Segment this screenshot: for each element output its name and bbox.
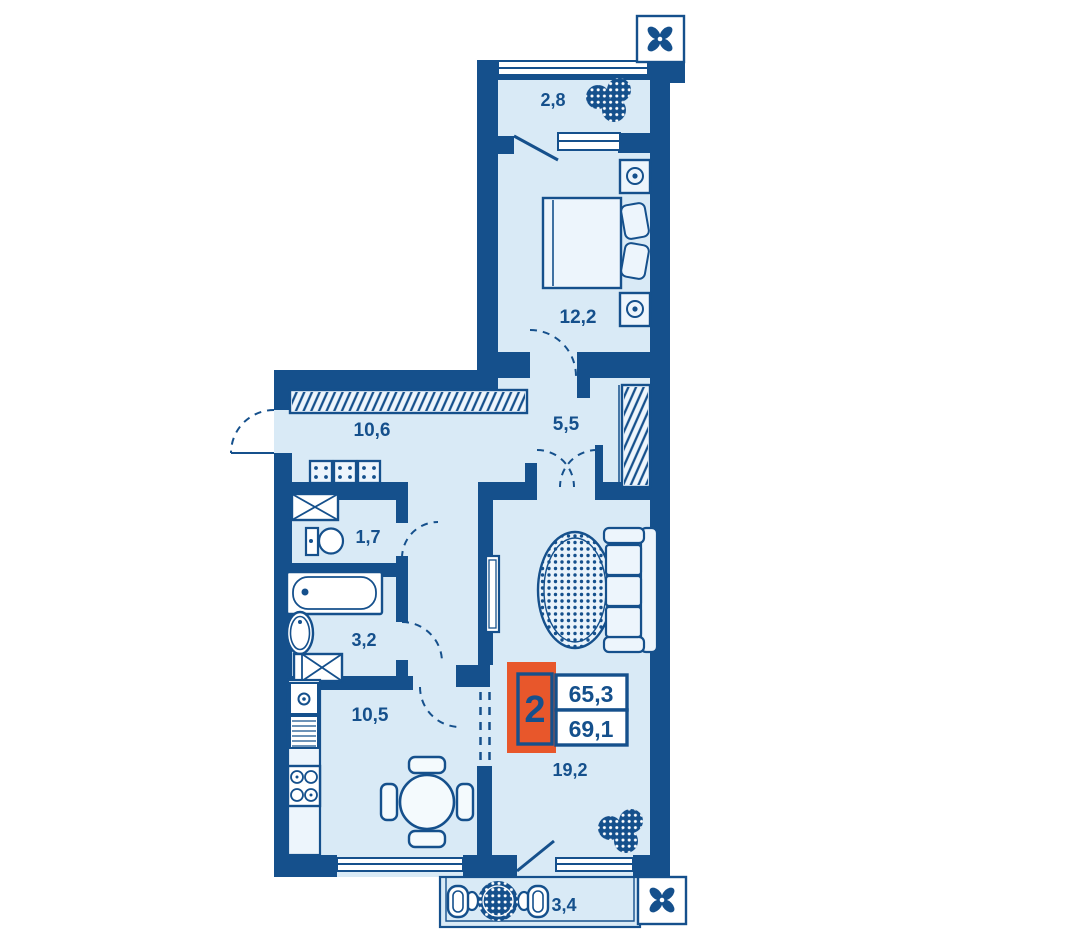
corridor-wardrobe	[619, 385, 650, 487]
kitchen-drainer	[290, 716, 318, 748]
unit-info-box: 2 65,3 69,1	[507, 662, 627, 753]
nightstand-bottom	[620, 293, 650, 326]
kitchen-counter	[288, 680, 320, 855]
hallway-wardrobe	[290, 390, 527, 413]
balcony-bottom-area-label: 3,4	[551, 895, 576, 915]
tv-unit	[486, 556, 499, 632]
bed	[543, 198, 650, 288]
vent-shaft-bottom	[638, 877, 686, 924]
vent-shaft-top	[637, 16, 684, 62]
balcony-bottom	[440, 877, 640, 927]
living-room-window	[556, 858, 633, 871]
wc-area-label: 1,7	[355, 527, 380, 547]
toilet	[306, 528, 343, 555]
kitchen-area-label: 10,5	[352, 705, 389, 726]
bedroom-area-label: 12,2	[560, 307, 597, 328]
unit-total-area: 69,1	[569, 716, 614, 742]
balcony-top-window	[498, 61, 648, 75]
nightstand-top	[620, 160, 650, 193]
bathtub	[287, 572, 382, 614]
bathroom-sink	[287, 612, 313, 654]
balcony-top-area-label: 2,8	[540, 90, 565, 110]
washing-machine	[292, 494, 338, 520]
bedroom-window	[558, 133, 620, 150]
washing-machine-2	[294, 654, 342, 681]
corridor-area-label: 5,5	[553, 414, 580, 435]
entrance-door-arc	[231, 410, 274, 453]
kitchen-sink	[290, 683, 318, 714]
floor-plan-canvas: 2 65,3 69,1	[0, 0, 1068, 932]
sofa	[604, 528, 657, 652]
stove	[288, 766, 320, 806]
rug	[538, 532, 612, 648]
hallway-area-label: 10,6	[354, 420, 391, 441]
floor-plan-page: 2 65,3 69,1	[0, 0, 1068, 932]
bathroom-area-label: 3,2	[351, 630, 376, 650]
kitchen-window	[337, 858, 463, 871]
shoe-cabinets	[310, 461, 380, 483]
unit-living-area: 65,3	[569, 681, 614, 707]
living-room-area-label: 19,2	[552, 760, 587, 780]
unit-rooms-count: 2	[524, 689, 545, 731]
